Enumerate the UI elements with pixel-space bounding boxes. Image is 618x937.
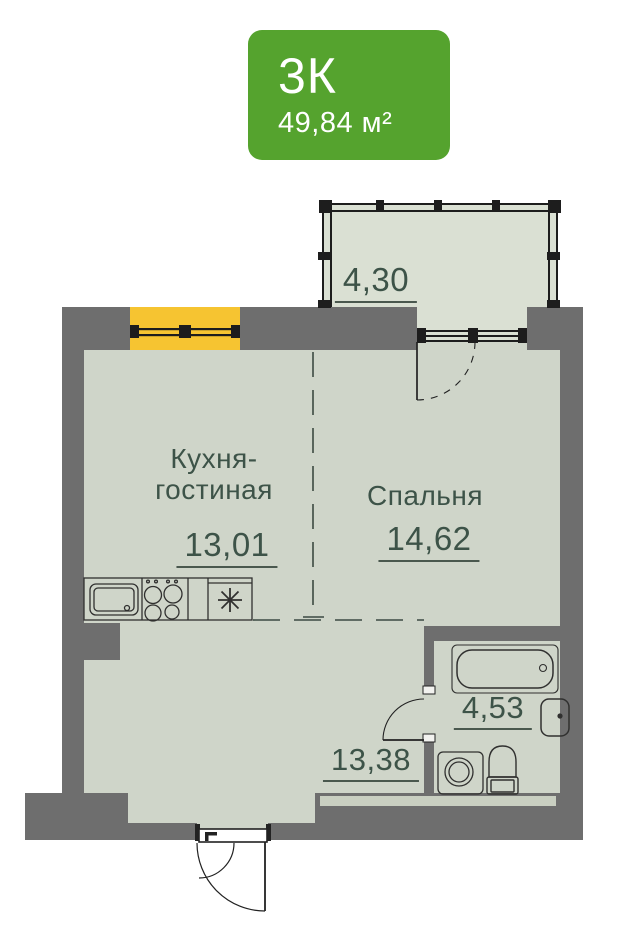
entrance-door-icon bbox=[195, 824, 271, 911]
balcony-window-frame bbox=[417, 328, 527, 343]
floor-plan-drawing bbox=[0, 0, 618, 937]
window-highlight bbox=[130, 307, 240, 350]
bedroom-area-label: 14,62 bbox=[378, 522, 479, 562]
bedroom-name-label: Спальня bbox=[367, 480, 483, 511]
floor-step bbox=[320, 796, 556, 806]
kitchen-area-label: 13,01 bbox=[176, 528, 277, 568]
bathroom-area-label: 4,53 bbox=[454, 692, 532, 730]
floor-plan-page: 3К 49,84 м² bbox=[0, 0, 618, 937]
hallway-area-label: 13,38 bbox=[323, 744, 419, 782]
kitchen-name-label: Кухня- гостиная bbox=[155, 443, 273, 506]
star-marker-icon bbox=[218, 588, 242, 612]
balcony-area-label: 4,30 bbox=[335, 263, 417, 303]
